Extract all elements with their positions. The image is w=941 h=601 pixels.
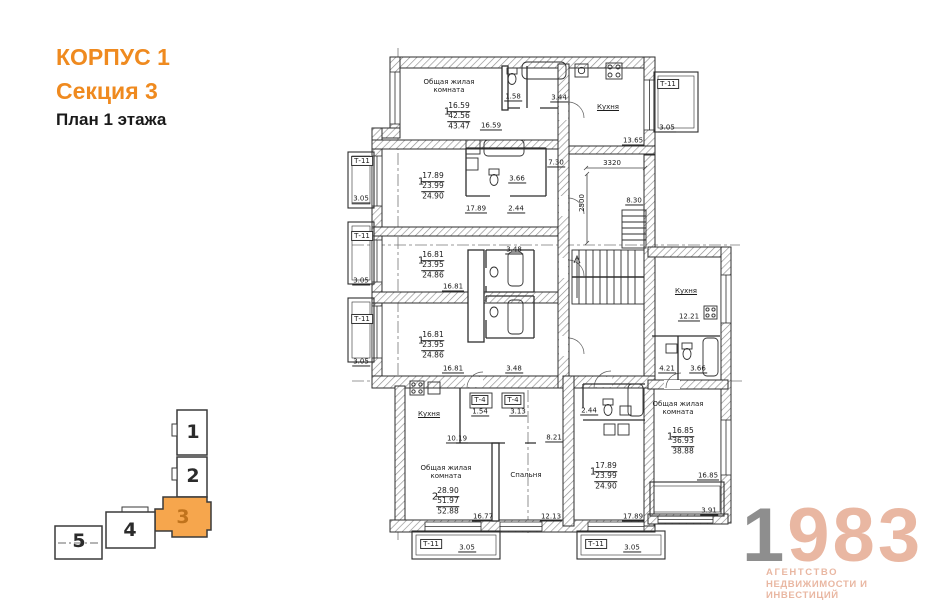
toilet-icon [490,267,498,277]
minimap-section-4 [106,512,155,548]
bathtub-icon [508,252,523,286]
minimap-section-2 [177,457,207,497]
minimap [55,410,211,559]
toilet-icon [682,343,692,360]
logo-caption-2: НЕДВИЖИМОСТИ И ИНВЕСТИЦИЙ [766,579,941,601]
floor-plan-page: { "header": { "building": "КОРПУС 1", "s… [0,0,941,600]
stove-icon [704,306,717,319]
sink-icon [466,158,478,170]
minimap-section-3 [155,497,211,537]
sink-icon [666,344,677,353]
minimap-section-1 [177,410,207,455]
logo-caption-1: АГЕНТСТВО [766,567,838,578]
bathtub-icon [703,338,718,376]
appliance-icon [618,424,629,435]
minimap-section-5 [55,526,102,559]
toilet-icon [489,169,499,186]
bathtub-icon [628,384,643,416]
toilet-icon [490,307,498,317]
logo-digit-1: 1 [742,493,787,578]
logo-1983: 1983 [742,498,923,574]
dimension-lines [584,166,647,245]
sink-icon [620,406,631,415]
toilet-icon [603,399,613,416]
appliance-icon [604,424,615,435]
bathtub-icon [508,300,523,334]
stairs [572,210,646,304]
logo-digits-983: 983 [787,493,923,578]
